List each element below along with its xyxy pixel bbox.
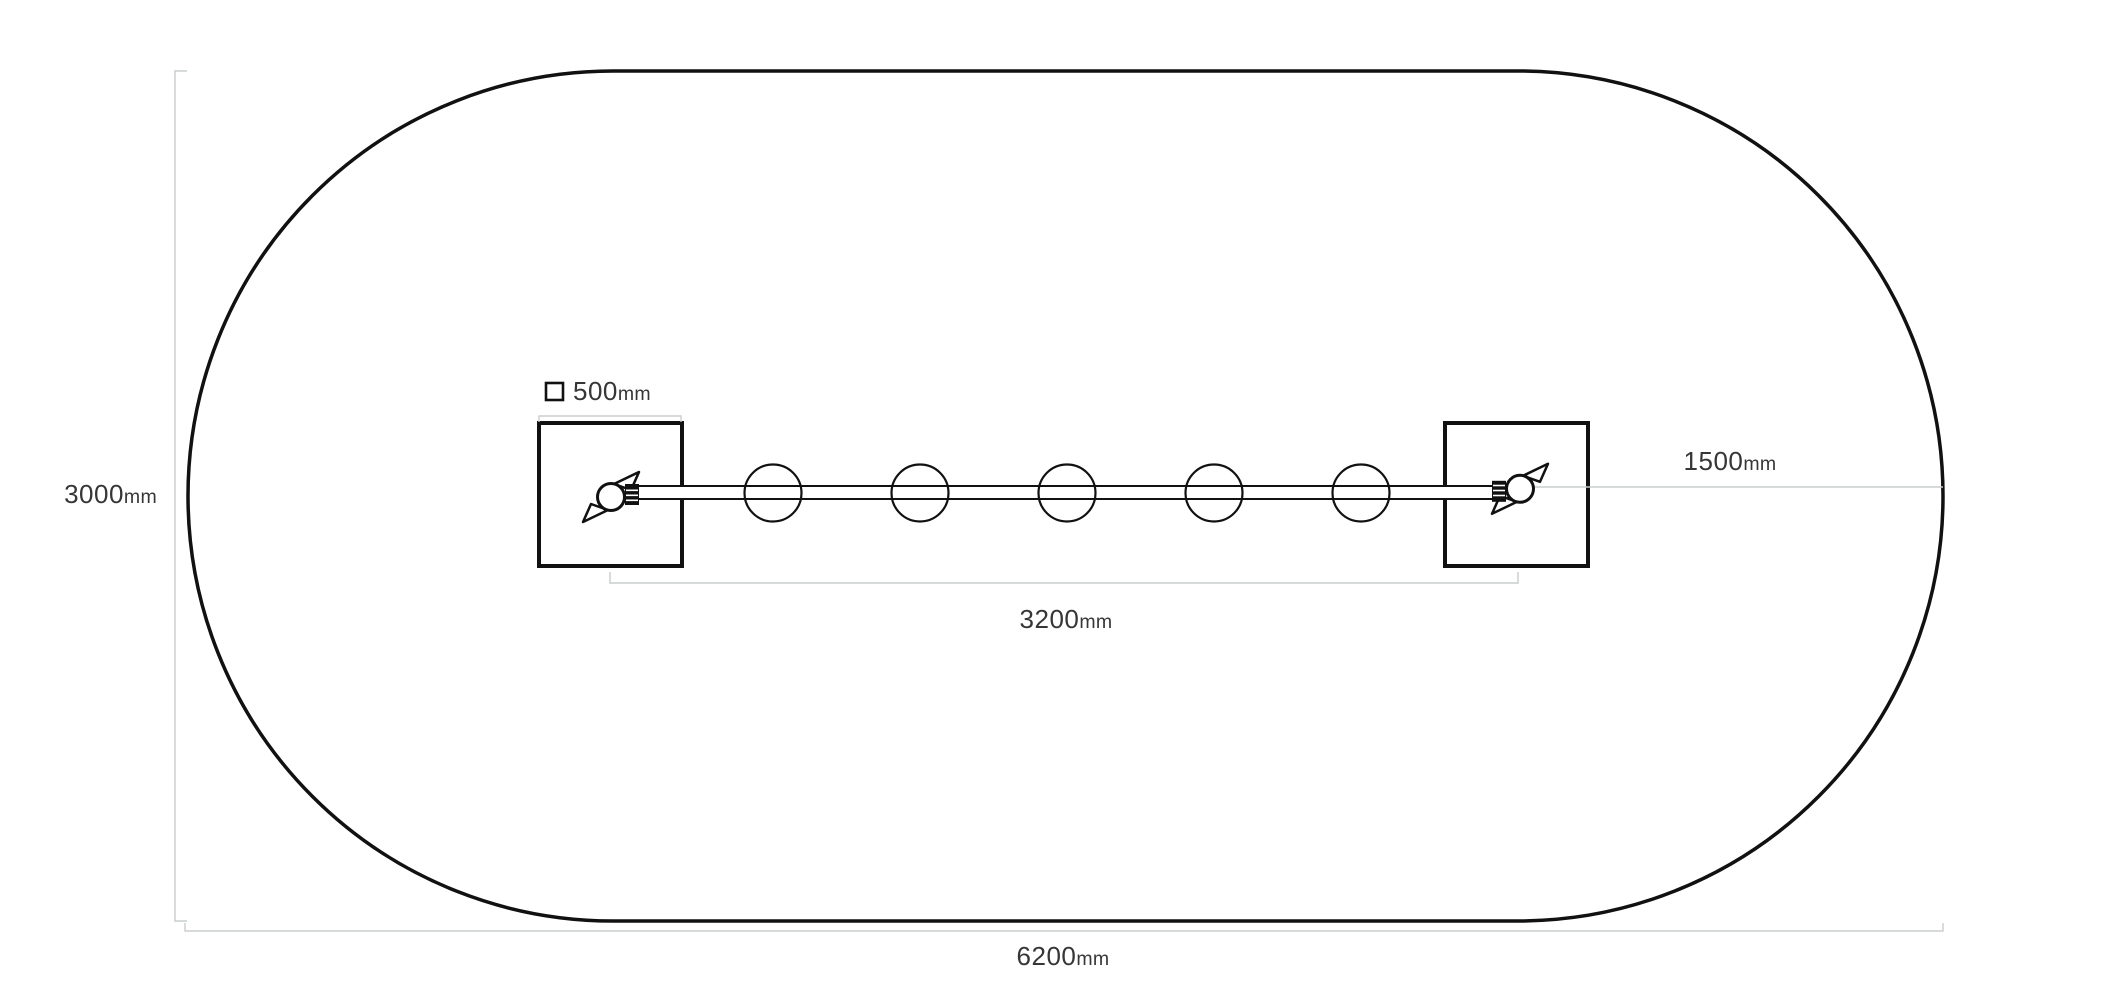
plan-view-drawing: 3000mm 6200mm 500mm 3200mm 1500mm: [0, 0, 2126, 992]
drawing-canvas: 3000mm 6200mm 500mm 3200mm 1500mm: [0, 0, 2126, 992]
zone-depth-dimension-label: 3000mm: [64, 479, 157, 509]
zone-width-dimension-line: [185, 923, 1943, 931]
zone-depth-dimension-line: [175, 71, 187, 921]
ladder-beam[interactable]: [638, 486, 1493, 499]
zone-width-dimension-label: 6200mm: [1017, 941, 1110, 971]
